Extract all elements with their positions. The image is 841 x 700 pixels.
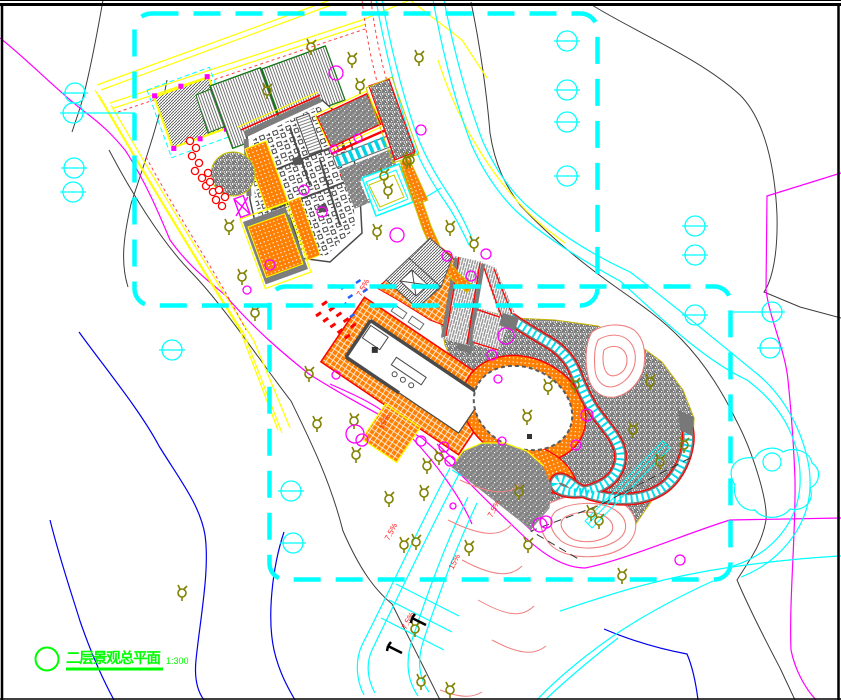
svg-text:1:300: 1:300 [166,656,189,666]
svg-text:二层景观总平面: 二层景观总平面 [66,649,161,667]
